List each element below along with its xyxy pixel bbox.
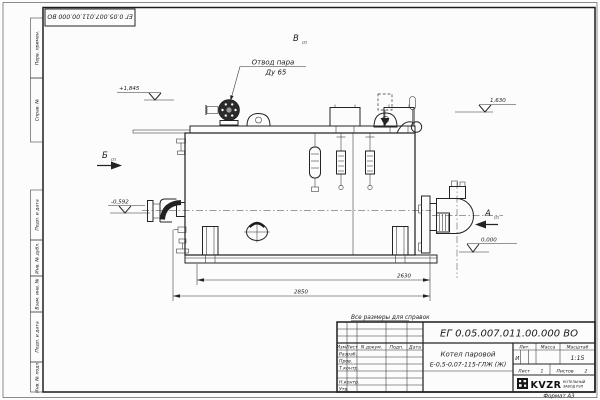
note-text: Все размеры для справок xyxy=(351,315,430,321)
water-column xyxy=(310,133,321,192)
base-rail xyxy=(185,255,437,263)
left-wall-fitting-top xyxy=(177,139,186,155)
sheets-label: Листов xyxy=(555,369,573,375)
role-utv: Утв. xyxy=(339,387,349,393)
dimension-2850: 2850 xyxy=(173,230,430,301)
kvzr-logo: KVZR КОТЕЛЬНЫЙ ЗАВОД РЭП xyxy=(517,378,586,391)
doc-number: ЕГ 0.05.007.011.00.000 ВО xyxy=(440,329,578,340)
view-sheet-ref: (2) xyxy=(111,158,117,162)
product-name-line2: Е-0,5-0,07-115-ГЛЖ (Ж) xyxy=(430,362,507,369)
col-list: Лист xyxy=(345,344,358,350)
lit-label: Лит. xyxy=(518,344,530,350)
steam-outlet-leader: Отвод пара Ду 65 xyxy=(230,59,306,101)
support-leg-right xyxy=(393,227,409,264)
view-label: А xyxy=(484,209,491,219)
elevation-text: 1,630 xyxy=(490,98,506,104)
scale-label: Масштаб xyxy=(567,344,589,350)
col-doc: N докум. xyxy=(361,344,382,350)
side-stamp-cells: Перв. примен. Справ. № Подп. и дата Инв.… xyxy=(31,18,44,393)
top-doc-number-stamp: ЕГ 0.05.007.011.00.000 ВО xyxy=(45,9,135,26)
lit-value: И xyxy=(515,356,519,362)
gauge-glass-1 xyxy=(337,133,346,190)
burner-mount-plate xyxy=(419,196,431,253)
brand-caption-2: ЗАВОД РЭП xyxy=(563,385,584,389)
manhole xyxy=(244,222,270,243)
col-date: Дата xyxy=(408,344,421,350)
leader-text-1: Отвод пара xyxy=(252,59,295,67)
valve-symbol xyxy=(381,118,390,126)
elevation-mark-1845: +1,845 xyxy=(117,86,174,100)
view-arrow-v: В (2) xyxy=(293,34,308,45)
side-label: Справ. № xyxy=(34,99,40,122)
sheet-value: 1 xyxy=(541,369,544,375)
elevation-mark-1630: 1,630 xyxy=(455,98,516,112)
role-nkontr: Н.контр. xyxy=(339,380,360,386)
view-label: Б xyxy=(102,151,108,161)
dim-text: 2850 xyxy=(294,290,308,296)
drawing-sheet: Перв. примен. Справ. № Подп. и дата Инв.… xyxy=(0,0,600,400)
safety-valve-ring xyxy=(411,122,421,132)
drawing-canvas: Перв. примен. Справ. № Подп. и дата Инв.… xyxy=(0,0,600,400)
side-label: Перв. примен. xyxy=(34,31,40,66)
reference-note: Все размеры для справок xyxy=(351,315,430,321)
left-ledge xyxy=(133,130,190,133)
dim-text: 2630 xyxy=(397,274,411,280)
burner xyxy=(430,181,474,234)
brand-text: KVZR xyxy=(531,380,562,391)
sheets-value: 2 xyxy=(585,369,588,375)
role-prov: Пров. xyxy=(339,359,352,365)
lifting-lug-left xyxy=(247,114,270,127)
title-block: Изм. Лист N докум. Подп. Дата Разраб. Пр… xyxy=(337,322,595,393)
elevation-mark-0000: 0,000 xyxy=(459,238,517,253)
elevation-mark-0592: -0,592 xyxy=(108,200,150,214)
left-wall-fitting-bottom-2 xyxy=(177,239,189,253)
side-label: Взам. инв. № xyxy=(34,278,40,309)
view-sheet-ref: (2) xyxy=(494,216,500,220)
role-razrab: Разраб. xyxy=(339,352,357,358)
top-doc-number: ЕГ 0.05.007.011.00.000 ВО xyxy=(47,13,132,20)
view-arrow-b: Б (2) xyxy=(97,151,122,170)
elevation-text: +1,845 xyxy=(119,86,140,92)
col-sign: Подп. xyxy=(390,344,404,350)
mass-label: Масса xyxy=(541,344,556,350)
side-label: Инв. № подл. xyxy=(34,361,40,393)
boiler-body xyxy=(185,133,415,255)
view-arrow-a: А (2) xyxy=(475,209,500,229)
safety-valve-pipe xyxy=(397,122,413,133)
lug-hole-left xyxy=(256,117,262,123)
view-label: В xyxy=(293,34,299,44)
scale-value: 1:15 xyxy=(571,355,585,362)
logo-mark-icon xyxy=(517,378,528,389)
side-label: Инв. № дубл. xyxy=(34,242,40,273)
view-sheet-ref: (2) xyxy=(302,41,308,45)
elevation-text: -0,592 xyxy=(111,200,129,206)
elevation-text: 0,000 xyxy=(481,238,497,244)
steam-outlet-valve xyxy=(206,100,240,126)
sheet-label: Лист xyxy=(517,369,530,375)
top-hatch-left xyxy=(330,105,360,134)
left-wall-fitting-bottom-1 xyxy=(174,227,187,233)
boiler-general-view: 2630 2850 +1,845 -0,592 1,630 xyxy=(97,34,517,301)
brand-caption-1: КОТЕЛЬНЫЙ xyxy=(563,379,586,384)
side-label: Подп. и дата xyxy=(34,321,40,352)
gauge-glass-2 xyxy=(366,133,375,190)
product-name-line1: Котел паровой xyxy=(441,351,496,359)
support-leg-left xyxy=(203,227,219,264)
leader-text-2: Ду 65 xyxy=(265,69,287,77)
role-tkontr: Т.контр. xyxy=(339,366,359,372)
format-label: Формат А3 xyxy=(543,394,575,400)
side-label: Подп. и дата xyxy=(34,199,40,230)
